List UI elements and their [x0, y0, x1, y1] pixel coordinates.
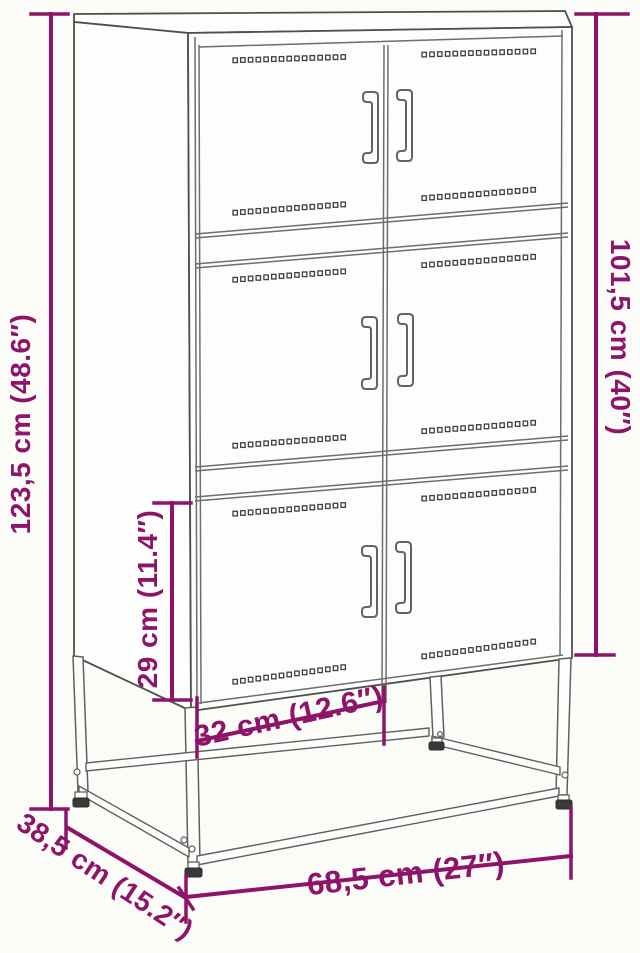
perforation-hole	[523, 421, 527, 426]
perforation-hole	[295, 506, 299, 511]
perforation-hole	[310, 505, 314, 510]
perforation-hole	[515, 49, 519, 54]
perforation-hole	[333, 436, 337, 441]
overall-height-label: 123,5 cm (48.6″)	[5, 314, 36, 535]
perforation-hole	[453, 194, 457, 199]
perforation-hole	[341, 435, 345, 440]
overall-width-label: 68,5 cm (27″)	[305, 845, 507, 902]
perforation-hole	[318, 271, 322, 276]
perforation-hole	[295, 273, 299, 278]
perforation-hole	[326, 203, 330, 208]
perforation-hole	[500, 50, 504, 55]
perforation-hole	[445, 194, 449, 199]
perforation-hole	[272, 674, 276, 679]
perforation-hole	[295, 206, 299, 211]
perforation-hole	[515, 189, 519, 194]
perforation-hole	[233, 443, 237, 448]
perforation-hole	[248, 510, 252, 515]
perforation-hole	[523, 255, 527, 260]
perforation-hole	[318, 668, 322, 673]
perforation-hole	[341, 665, 345, 670]
perforation-hole	[241, 511, 245, 516]
perforation-hole	[484, 258, 488, 263]
perforation-hole	[318, 55, 322, 60]
perforation-hole	[477, 425, 481, 430]
perforation-hole	[461, 260, 465, 265]
perforation-hole	[492, 258, 496, 263]
perforation-hole	[438, 495, 442, 500]
stand-stretcher-front	[197, 788, 559, 865]
perforation-hole	[508, 422, 512, 427]
perforation-hole	[477, 647, 481, 652]
perforation-hole	[333, 55, 337, 60]
perforation-hole	[515, 641, 519, 646]
perforation-hole	[272, 207, 276, 212]
perforation-hole	[241, 443, 245, 448]
perforation-hole	[515, 422, 519, 427]
perforation-hole	[272, 274, 276, 279]
perforation-hole	[469, 51, 473, 56]
perforation-hole	[302, 506, 306, 511]
perforation-hole	[484, 50, 488, 55]
perforation-hole	[310, 205, 314, 210]
perforation-hole	[310, 56, 314, 61]
perforation-hole	[523, 188, 527, 193]
perforation-hole	[318, 505, 322, 510]
depth-label: 38,5 cm (15.2″)	[11, 807, 199, 946]
overall-height-dimension: 123,5 cm (48.6″)	[5, 14, 68, 809]
perforation-hole	[438, 652, 442, 657]
perforation-hole	[477, 192, 481, 197]
compartment-height-label: 29 cm (11.4″)	[132, 510, 163, 689]
perforation-hole	[500, 190, 504, 195]
perforation-hole	[272, 440, 276, 445]
perforation-hole	[256, 276, 260, 281]
perforation-hole	[430, 52, 434, 57]
perforation-hole	[295, 439, 299, 444]
perforation-hole	[531, 639, 535, 644]
perforation-hole	[241, 678, 245, 683]
perforation-hole	[492, 191, 496, 196]
perforation-hole	[461, 426, 465, 431]
perforation-hole	[461, 649, 465, 654]
perforation-hole	[515, 489, 519, 494]
perforation-hole	[422, 196, 426, 201]
perforation-hole	[272, 57, 276, 62]
perforation-hole	[264, 675, 268, 680]
perforation-hole	[302, 205, 306, 210]
perforation-hole	[318, 437, 322, 442]
perforation-hole	[531, 421, 535, 426]
perforation-hole	[477, 51, 481, 56]
perforation-hole	[248, 276, 252, 281]
perforation-hole	[484, 646, 488, 651]
perforation-hole	[287, 206, 291, 211]
perforation-hole	[264, 509, 268, 514]
perforation-hole	[461, 51, 465, 56]
perforation-hole	[279, 508, 283, 513]
perforation-hole	[477, 259, 481, 264]
perforation-hole	[248, 209, 252, 214]
perforation-hole	[515, 256, 519, 261]
perforation-hole	[508, 643, 512, 648]
perforation-hole	[461, 493, 465, 498]
perforation-hole	[484, 191, 488, 196]
perforation-hole	[341, 202, 345, 207]
perforation-hole	[445, 261, 449, 266]
perforation-hole	[531, 255, 535, 260]
perforation-hole	[500, 490, 504, 495]
perforation-hole	[461, 193, 465, 198]
perforation-hole	[295, 671, 299, 676]
perforation-hole	[531, 488, 535, 493]
stand-stretcher-right	[432, 736, 560, 775]
perforation-hole	[508, 489, 512, 494]
stand-leg-back-right	[430, 676, 444, 738]
perforation-hole	[508, 50, 512, 55]
foot-back-right	[429, 742, 444, 750]
perforation-hole	[279, 57, 283, 62]
perforation-hole	[264, 275, 268, 280]
perforation-hole	[341, 55, 345, 60]
perforation-hole	[264, 441, 268, 446]
perforation-hole	[469, 259, 473, 264]
perforation-hole	[326, 270, 330, 275]
perforation-hole	[453, 261, 457, 266]
perforation-hole	[295, 56, 299, 61]
perforation-hole	[287, 56, 291, 61]
perforation-hole	[430, 262, 434, 267]
perforation-hole	[453, 427, 457, 432]
perforation-hole	[241, 58, 245, 63]
cabinet-front-face	[188, 27, 572, 711]
perforation-hole	[302, 438, 306, 443]
perforation-hole	[492, 424, 496, 429]
perforation-hole	[430, 428, 434, 433]
perforation-hole	[430, 653, 434, 658]
perforation-hole	[272, 508, 276, 513]
perforation-hole	[310, 272, 314, 277]
perforation-hole	[287, 273, 291, 278]
perforation-hole	[233, 58, 237, 63]
perforation-hole	[256, 57, 260, 62]
perforation-hole	[438, 195, 442, 200]
perforation-hole	[302, 272, 306, 277]
cabinet-dimension-drawing: 123,5 cm (48.6″) 101,5 cm (40″) 29 cm (1…	[0, 0, 640, 953]
depth-dimension: 38,5 cm (15.2″)	[11, 807, 199, 946]
perforation-hole	[523, 640, 527, 645]
perforation-hole	[241, 277, 245, 282]
perforation-hole	[508, 189, 512, 194]
perforation-hole	[326, 667, 330, 672]
perforation-hole	[492, 645, 496, 650]
perforation-hole	[233, 277, 237, 282]
perforation-hole	[453, 494, 457, 499]
perforation-hole	[500, 644, 504, 649]
perforation-hole	[318, 204, 322, 209]
right-height-label: 101,5 cm (40″)	[605, 239, 636, 435]
perforation-hole	[445, 427, 449, 432]
perforation-hole	[492, 50, 496, 55]
perforation-hole	[508, 256, 512, 261]
perforation-hole	[341, 269, 345, 274]
perforation-hole	[500, 257, 504, 262]
perforation-hole	[233, 679, 237, 684]
perforation-hole	[279, 440, 283, 445]
perforation-hole	[333, 666, 337, 671]
perforation-hole	[430, 496, 434, 501]
perforation-hole	[469, 493, 473, 498]
perforation-hole	[531, 188, 535, 193]
perforation-hole	[523, 49, 527, 54]
perforation-hole	[302, 670, 306, 675]
perforation-hole	[233, 511, 237, 516]
perforation-hole	[445, 52, 449, 57]
perforation-hole	[430, 195, 434, 200]
perforation-hole	[422, 429, 426, 434]
perforation-hole	[279, 274, 283, 279]
perforation-hole	[484, 424, 488, 429]
right-height-dimension: 101,5 cm (40″)	[576, 14, 636, 655]
perforation-hole	[341, 503, 345, 508]
perforation-hole	[484, 491, 488, 496]
perforation-hole	[256, 442, 260, 447]
perforation-hole	[445, 651, 449, 656]
perforation-hole	[248, 58, 252, 63]
perforation-hole	[264, 57, 268, 62]
perforation-hole	[241, 210, 245, 215]
perforation-hole	[422, 52, 426, 57]
perforation-hole	[531, 49, 535, 54]
perforation-hole	[256, 676, 260, 681]
perforation-hole	[477, 492, 481, 497]
perforation-hole	[287, 507, 291, 512]
perforation-hole	[287, 439, 291, 444]
perforation-hole	[469, 425, 473, 430]
perforation-hole	[279, 673, 283, 678]
perforation-hole	[422, 496, 426, 501]
perforation-hole	[310, 669, 314, 674]
dimension-diagram: 123,5 cm (48.6″) 101,5 cm (40″) 29 cm (1…	[0, 0, 640, 953]
perforation-hole	[500, 423, 504, 428]
perforation-hole	[438, 428, 442, 433]
perforation-hole	[326, 504, 330, 509]
perforation-hole	[287, 672, 291, 677]
perforation-hole	[333, 503, 337, 508]
perforation-hole	[264, 208, 268, 213]
perforation-hole	[469, 192, 473, 197]
perforation-hole	[233, 210, 237, 215]
perforation-hole	[256, 509, 260, 514]
perforation-hole	[248, 442, 252, 447]
perforation-hole	[422, 263, 426, 268]
perforation-hole	[310, 438, 314, 443]
perforation-hole	[302, 56, 306, 61]
perforation-hole	[422, 654, 426, 659]
perforation-hole	[445, 494, 449, 499]
perforation-hole	[326, 436, 330, 441]
perforation-hole	[453, 51, 457, 56]
foot-back-left	[73, 798, 89, 807]
perforation-hole	[333, 270, 337, 275]
perforation-hole	[438, 52, 442, 57]
perforation-hole	[256, 209, 260, 214]
perforation-hole	[523, 488, 527, 493]
perforation-hole	[438, 262, 442, 267]
perforation-hole	[469, 648, 473, 653]
perforation-hole	[492, 491, 496, 496]
perforation-hole	[279, 207, 283, 212]
perforation-hole	[453, 650, 457, 655]
perforation-hole	[326, 55, 330, 60]
perforation-hole	[248, 677, 252, 682]
perforation-hole	[333, 203, 337, 208]
